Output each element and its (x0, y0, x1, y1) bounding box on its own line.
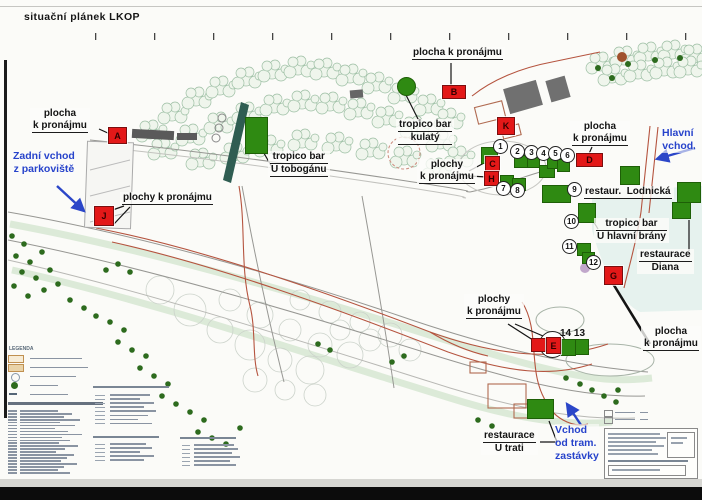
callout-plochy-j: plochy k pronájmu (120, 192, 215, 205)
site-number-1: 1 (493, 139, 508, 154)
legend-textline (8, 457, 17, 459)
legend-textline (8, 445, 17, 447)
callout-line: k pronájmu (466, 306, 522, 319)
callout-line: plocha (643, 326, 699, 338)
site-number-7: 7 (496, 181, 511, 196)
site-number-11: 11 (562, 239, 577, 254)
legend-textline (95, 444, 105, 445)
callout-line: tropico bar (398, 119, 452, 132)
legend-textline (8, 434, 17, 436)
legend-textline (95, 423, 105, 424)
callout-line: plocha (32, 108, 88, 120)
callout-line: plocha (572, 121, 628, 133)
legend-textline (20, 469, 58, 471)
legend-textline (194, 452, 232, 454)
callout-line: kulatý (398, 132, 452, 145)
site-number-6: 6 (560, 148, 575, 163)
title-block (604, 428, 698, 479)
legend-textline (8, 466, 17, 468)
legend-textline (110, 406, 144, 408)
legend-textline (182, 449, 190, 450)
legend-textline (608, 449, 652, 451)
callout-line: tropico bar (270, 151, 328, 164)
legend-textline (8, 472, 17, 474)
legend-textline (93, 386, 169, 388)
legend-swatch (8, 364, 24, 372)
legend-textline (194, 456, 240, 458)
entrance-note-vchod-tram: Vchodod tram.zastávky (555, 424, 599, 463)
entrance-line: vchod (662, 140, 694, 153)
legend-swatch (11, 382, 18, 389)
entrance-note-hlavni-vchod: Hlavnívchod (662, 127, 694, 153)
legend-textline (20, 440, 70, 442)
legend-textline (20, 463, 77, 465)
callout-line: Diana (639, 262, 692, 274)
legend-textline (20, 416, 64, 418)
legend-textline (194, 444, 234, 446)
legend-textline (20, 448, 65, 450)
entrance-line: z parkoviště (13, 163, 75, 176)
legend-textline (110, 394, 150, 396)
callout-plocha-d: plochak pronájmu (570, 121, 630, 146)
legend-textline (95, 460, 105, 461)
legend-textline (95, 411, 105, 412)
legend-textline (8, 416, 17, 418)
legend-textline (93, 436, 159, 438)
green-site (245, 117, 268, 154)
legend-textline (608, 460, 688, 462)
callout-plocha-b: plocha k pronájmu (410, 47, 505, 60)
callout-restaur-lodnicka: restaur. Lodnická (582, 186, 674, 199)
callout-line: plocha k pronájmu (412, 47, 503, 60)
entrance-line: Zadní vchod (13, 150, 75, 163)
callout-line: plochy (419, 159, 475, 171)
legend-textline (20, 410, 58, 412)
legend-textline (8, 425, 17, 427)
legend-textline (8, 410, 17, 412)
legend-textline (8, 419, 17, 421)
green-site (575, 339, 589, 355)
marker-D: D (576, 153, 603, 167)
legend-textline (20, 451, 56, 453)
legend-textline (640, 412, 648, 414)
legend-textline (194, 460, 230, 462)
legend-textline (95, 395, 105, 396)
callout-line: tropico bar (596, 218, 667, 231)
legend-textline (110, 398, 140, 400)
legend-textline (671, 437, 687, 439)
legend-textline (182, 445, 190, 446)
legend-textline (8, 440, 17, 442)
legend-textline (30, 358, 82, 360)
legend-textline (110, 415, 148, 417)
callout-line: plochy (466, 294, 522, 306)
legend-textline (8, 431, 17, 433)
legend-textline (95, 419, 105, 420)
legend-textline (20, 419, 80, 421)
legend-textline (194, 464, 236, 466)
green-site (620, 166, 640, 185)
callout-plochy-e: plochyk pronájmu (464, 294, 524, 319)
site-number-9: 9 (567, 182, 582, 197)
legend-textline (110, 443, 146, 445)
green-site (677, 182, 701, 203)
legend-textline (110, 410, 156, 412)
scan-edge-left (4, 60, 7, 418)
legend-textline (95, 403, 105, 404)
site-number-8: 8 (510, 183, 525, 198)
legend-textline (110, 459, 144, 461)
legend-textline (20, 413, 72, 415)
legend-textline (110, 451, 140, 453)
legend-textline (20, 460, 61, 462)
callout-line: k pronájmu (32, 120, 88, 133)
legend-textline (671, 442, 683, 444)
callout-line: restaur. Lodnická (584, 186, 672, 199)
marker-G: G (604, 266, 623, 285)
legend-textline (20, 466, 64, 468)
marker-C: C (485, 156, 500, 172)
marker-B: B (442, 85, 466, 99)
legend-textline (20, 428, 55, 430)
legend-textline (20, 454, 74, 456)
marker-A: A (108, 127, 127, 144)
legend-textline (8, 437, 17, 439)
legend-textline (95, 456, 105, 457)
callout-tropico-tobogan: tropico barU tobogánu (268, 151, 330, 177)
legend-swatch (11, 373, 20, 382)
legend-textline (8, 442, 17, 444)
legend-textline (8, 451, 17, 453)
callout-line: U hlavní brány (596, 231, 667, 243)
callout-line: k pronájmu (643, 338, 699, 351)
entrance-note-zadni-vchod: Zadní vchodz parkoviště (13, 150, 75, 176)
green-site (527, 399, 554, 419)
legend-textline (20, 445, 78, 447)
legend-textline (8, 413, 17, 415)
callout-line: k pronájmu (419, 171, 475, 184)
callout-line: 14 13 (559, 328, 586, 340)
legend-textline (182, 465, 190, 466)
legend-textline (20, 425, 75, 427)
legend-textline (608, 441, 656, 443)
legend-textline (8, 463, 17, 465)
site-number-10: 10 (564, 214, 579, 229)
legend-textline (612, 469, 660, 471)
page-title: situační plánek LKOP (24, 11, 140, 23)
legend-textline (20, 457, 67, 459)
legend-swatch (604, 417, 613, 424)
legend-swatch (8, 355, 24, 363)
legend-textline (20, 472, 70, 474)
callout-tropico-kulaty: tropico barkulatý (396, 119, 454, 145)
legend-textline (110, 455, 154, 457)
legend-textline (8, 460, 17, 462)
legend-textline (95, 399, 105, 400)
callout-plocha-g: plochak pronájmu (641, 326, 701, 351)
tropico-bar-kulaty-site (397, 77, 416, 96)
legend-textline (8, 469, 17, 471)
legend-textline (608, 437, 666, 439)
site-number-2: 2 (510, 144, 525, 159)
legend-textline (8, 422, 17, 424)
legend-textline (20, 437, 62, 439)
callout-plocha-a: plochak pronájmu (30, 108, 90, 133)
callout-line: restaurace (639, 249, 692, 262)
legend-textline (95, 452, 105, 453)
scanned-site-plan: situační plánek LKOP plochak pronájmuplo… (0, 0, 702, 500)
legend-title: LEGENDA (9, 346, 33, 352)
green-site (672, 202, 691, 219)
title-block-box (608, 465, 686, 476)
mini-legend (604, 410, 644, 425)
legend-textline (640, 419, 648, 421)
legend-textline (20, 422, 60, 424)
legend-textline (8, 448, 17, 450)
legend-textline (9, 393, 17, 395)
marker-J: J (94, 206, 114, 226)
legend-textline (95, 407, 105, 408)
legend-textline (30, 385, 58, 387)
legend-textline (608, 445, 664, 447)
entrance-line: Hlavní (662, 127, 694, 140)
legend-swatch (604, 410, 613, 417)
callout-line: k pronájmu (572, 133, 628, 146)
legend-textline (608, 453, 658, 455)
callout-line: U trati (483, 443, 536, 455)
legend-textline (615, 419, 635, 421)
entrance-line: zastávky (555, 450, 599, 463)
legend-textline (95, 448, 105, 449)
legend-textline (20, 431, 68, 433)
legend-textline (608, 433, 660, 435)
callout-sites-14-13: 14 13 (559, 328, 586, 340)
map-legend: LEGENDA (0, 344, 260, 476)
legend-textline (30, 376, 76, 378)
legend-textline (182, 453, 190, 454)
callout-restaurace-diana: restauraceDiana (637, 249, 694, 274)
legend-textline (30, 394, 68, 396)
callout-line: restaurace (483, 430, 536, 443)
site-number-12: 12 (586, 255, 601, 270)
legend-textline (20, 442, 59, 444)
legend-textline (20, 434, 82, 436)
green-site (561, 339, 576, 356)
legend-textline (110, 402, 154, 404)
legend-textline (110, 419, 138, 421)
legend-textline (180, 437, 236, 439)
legend-textline (95, 415, 105, 416)
callout-line: plochy k pronájmu (122, 192, 213, 205)
legend-textline (615, 412, 635, 414)
callout-restaurace-utrati: restauraceU trati (481, 430, 538, 455)
legend-textline (182, 457, 190, 458)
title-block-box (667, 432, 695, 458)
rental-spot-red-square (531, 338, 546, 352)
legend-textline (110, 423, 152, 425)
legend-textline (8, 402, 103, 405)
legend-textline (8, 428, 17, 430)
callout-tropico-brany: tropico barU hlavní brány (594, 218, 669, 243)
marker-K: K (497, 117, 515, 135)
legend-textline (194, 448, 238, 450)
entrance-line: Vchod (555, 424, 599, 437)
legend-textline (8, 454, 17, 456)
entrance-line: od tram. (555, 437, 599, 450)
legend-textline (182, 461, 190, 462)
callout-plochy-ch: plochyk pronájmu (417, 159, 477, 184)
legend-textline (110, 447, 152, 449)
callout-line: U tobogánu (270, 164, 328, 177)
legend-textline (30, 367, 88, 369)
